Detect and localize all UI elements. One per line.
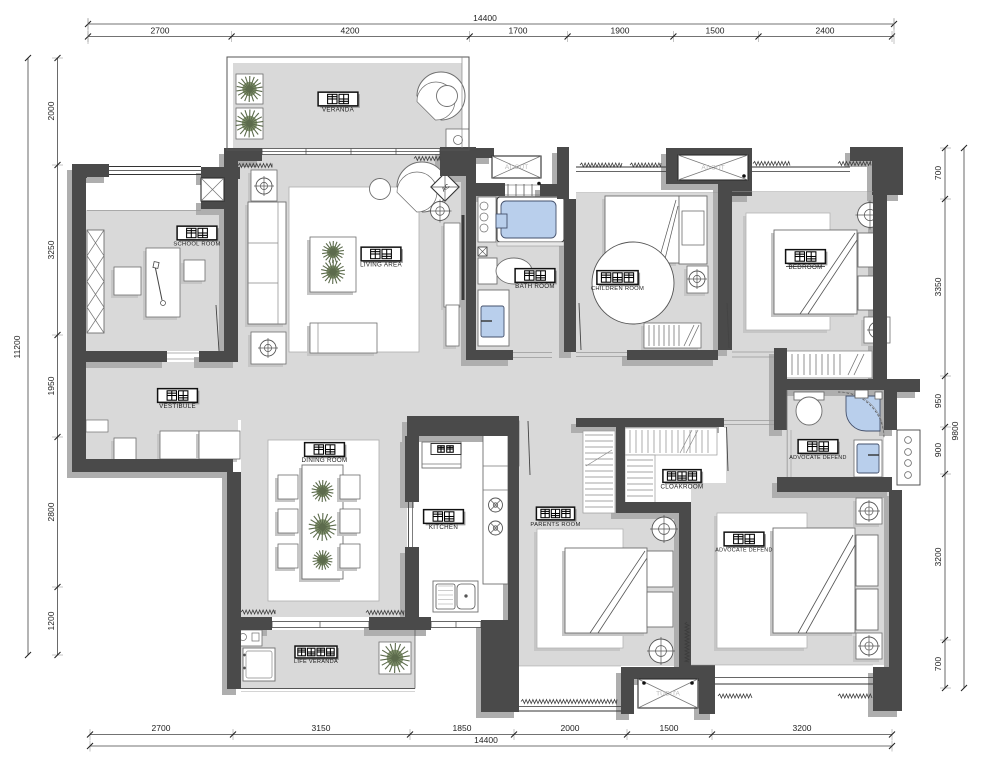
svg-text:DINING ROOM: DINING ROOM bbox=[302, 457, 348, 464]
svg-text:2000: 2000 bbox=[561, 723, 580, 733]
svg-text:CHILDREN ROOM: CHILDREN ROOM bbox=[591, 286, 644, 292]
svg-text:1500: 1500 bbox=[660, 723, 679, 733]
svg-text:2800: 2800 bbox=[46, 502, 56, 521]
svg-text:1900: 1900 bbox=[611, 26, 630, 36]
svg-text:11200: 11200 bbox=[12, 335, 22, 358]
svg-text:3350: 3350 bbox=[933, 277, 943, 296]
svg-text:900: 900 bbox=[933, 443, 943, 457]
svg-text:AT-OUT: AT-OUT bbox=[701, 165, 724, 172]
svg-text:BEDROOM: BEDROOM bbox=[788, 264, 822, 271]
svg-text:2000: 2000 bbox=[46, 101, 56, 120]
svg-text:1500: 1500 bbox=[706, 26, 725, 36]
svg-text:VERANDA: VERANDA bbox=[322, 107, 355, 114]
svg-text:LIVING AREA: LIVING AREA bbox=[360, 262, 402, 269]
svg-text:LIFE VERANDA: LIFE VERANDA bbox=[294, 659, 338, 665]
svg-text:VESTIBULE: VESTIBULE bbox=[159, 403, 196, 410]
svg-text:9800: 9800 bbox=[950, 421, 960, 440]
svg-text:KITCHEN: KITCHEN bbox=[429, 524, 458, 531]
svg-text:1850: 1850 bbox=[453, 723, 472, 733]
svg-text:3250: 3250 bbox=[46, 240, 56, 259]
svg-text:ADVOCATE DEFEND: ADVOCATE DEFEND bbox=[715, 548, 772, 554]
svg-text:1950: 1950 bbox=[46, 376, 56, 395]
svg-text:1700: 1700 bbox=[509, 26, 528, 36]
svg-text:700: 700 bbox=[933, 166, 943, 180]
svg-text:4200: 4200 bbox=[341, 26, 360, 36]
svg-text:BATH ROOM: BATH ROOM bbox=[515, 283, 555, 290]
svg-text:2400: 2400 bbox=[816, 26, 835, 36]
svg-text:SCHOOL ROOM: SCHOOL ROOM bbox=[173, 242, 220, 248]
svg-text:700: 700 bbox=[933, 657, 943, 671]
svg-text:14400: 14400 bbox=[473, 13, 497, 23]
svg-text:1200: 1200 bbox=[46, 611, 56, 630]
svg-text:ADVOCATE DEFEND: ADVOCATE DEFEND bbox=[789, 455, 846, 461]
svg-text:CLOAKROOM: CLOAKROOM bbox=[661, 484, 704, 491]
svg-text:950: 950 bbox=[933, 394, 943, 408]
svg-text:3200: 3200 bbox=[793, 723, 812, 733]
svg-text:2700: 2700 bbox=[151, 26, 170, 36]
svg-text:3150: 3150 bbox=[312, 723, 331, 733]
svg-text:2700: 2700 bbox=[152, 723, 171, 733]
svg-text:AT-OUT: AT-OUT bbox=[505, 164, 528, 171]
svg-text:3200: 3200 bbox=[933, 547, 943, 566]
svg-text:PARENTS ROOM: PARENTS ROOM bbox=[530, 522, 580, 528]
svg-text:14400: 14400 bbox=[474, 735, 498, 745]
svg-text:TUO-TA: TUO-TA bbox=[656, 691, 680, 698]
